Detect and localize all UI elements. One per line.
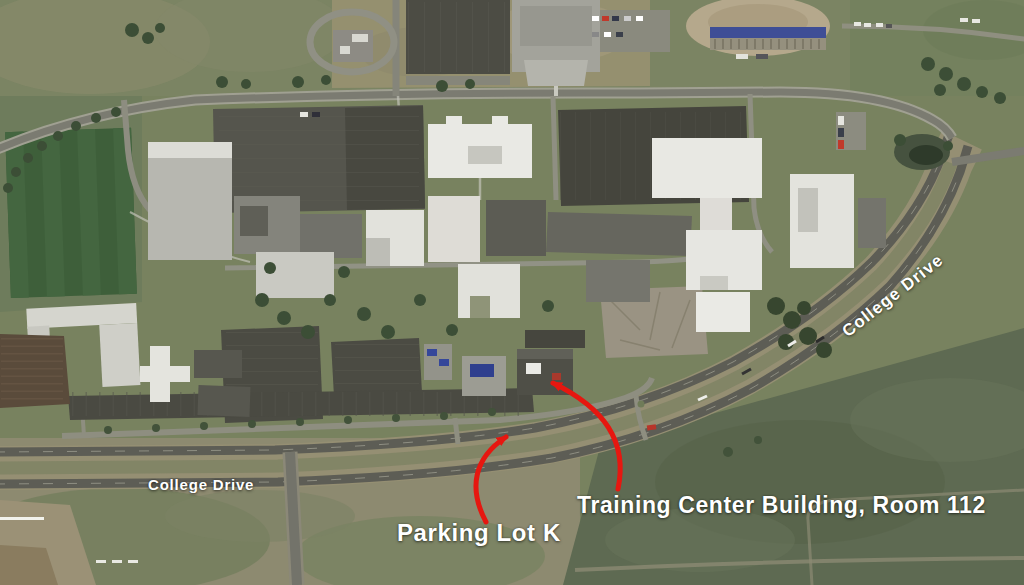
training-center-building [517,349,573,395]
grandstand-roof [710,27,826,38]
soccer-field [5,128,137,298]
terraced-slope [0,334,70,408]
campus-satellite-map: College Drive College Drive Parking Lot … [0,0,1024,585]
training-center-label: Training Center Building, Room 112 [577,492,986,519]
parking-lot-k-label: Parking Lot K [397,519,561,547]
college-drive-label-lower: College Drive [148,476,254,493]
